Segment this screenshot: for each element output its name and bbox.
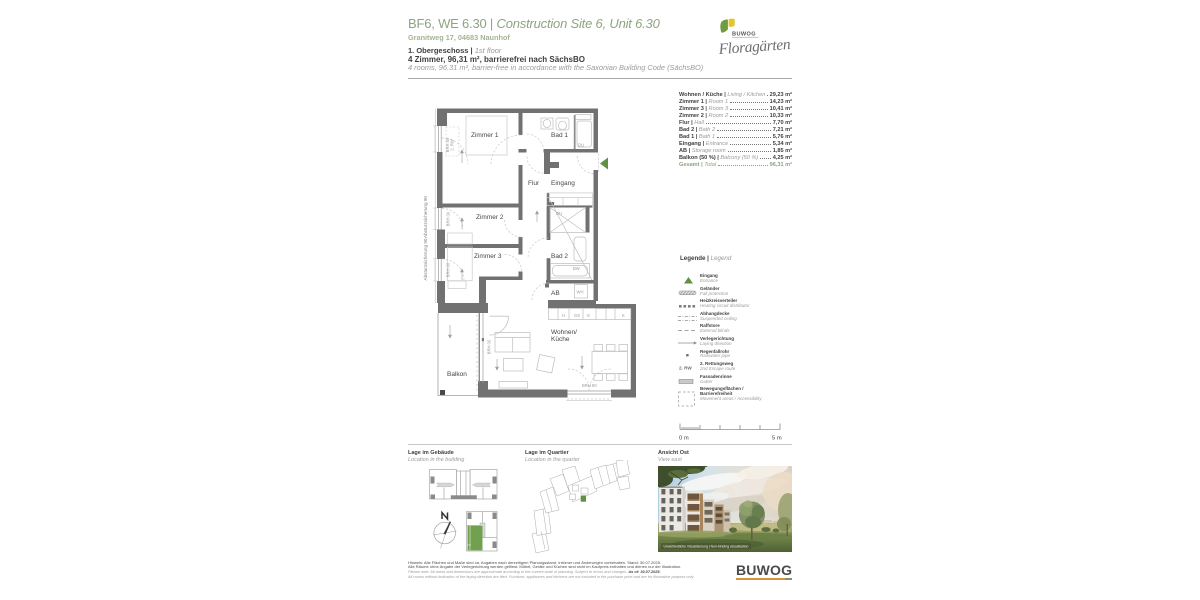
- svg-text:Zimmer 1: Zimmer 1: [471, 132, 499, 139]
- svg-text:BRH 00: BRH 00: [487, 339, 492, 354]
- svg-text:Wohnen/: Wohnen/: [551, 329, 577, 336]
- svg-text:Flur: Flur: [528, 180, 540, 187]
- svg-text:BRH 00: BRH 00: [446, 262, 451, 277]
- svg-text:5 m: 5 m: [772, 436, 782, 442]
- svg-text:Unverbindliche Visualisierung: Unverbindliche Visualisierung | Non-bind…: [664, 544, 749, 548]
- svg-text:Küche: Küche: [551, 336, 570, 343]
- svg-text:DU: DU: [556, 211, 562, 216]
- svg-text:Floragärten: Floragärten: [717, 36, 791, 58]
- svg-text:AB: AB: [551, 290, 560, 297]
- svg-text:DU: DU: [578, 143, 584, 148]
- svg-text:Balkon: Balkon: [447, 371, 467, 378]
- svg-text:H: H: [562, 313, 565, 318]
- svg-text:2. RW: 2. RW: [450, 139, 455, 151]
- svg-text:Zimmer 2: Zimmer 2: [476, 214, 504, 221]
- svg-text:S: S: [587, 313, 590, 318]
- svg-text:Zimmer 3: Zimmer 3: [474, 253, 502, 260]
- svg-text:Absturzsicherung 90: Absturzsicherung 90: [423, 238, 428, 280]
- svg-text:Bad 2: Bad 2: [551, 253, 568, 260]
- svg-text:GS: GS: [574, 313, 580, 318]
- svg-text:0 m: 0 m: [679, 436, 689, 442]
- svg-text:K: K: [622, 313, 625, 318]
- svg-text:Absturzsicherung 90: Absturzsicherung 90: [423, 196, 428, 238]
- svg-text:BUWOG: BUWOG: [732, 32, 756, 38]
- svg-text:BW: BW: [573, 266, 580, 271]
- svg-text:Eingang: Eingang: [551, 180, 575, 187]
- svg-text:Bad 1: Bad 1: [551, 132, 568, 139]
- svg-text:BRH 80: BRH 80: [582, 383, 597, 388]
- svg-text:2. RW: 2. RW: [679, 366, 692, 371]
- svg-text:WH: WH: [577, 290, 584, 295]
- svg-text:BRH 00: BRH 00: [446, 211, 451, 226]
